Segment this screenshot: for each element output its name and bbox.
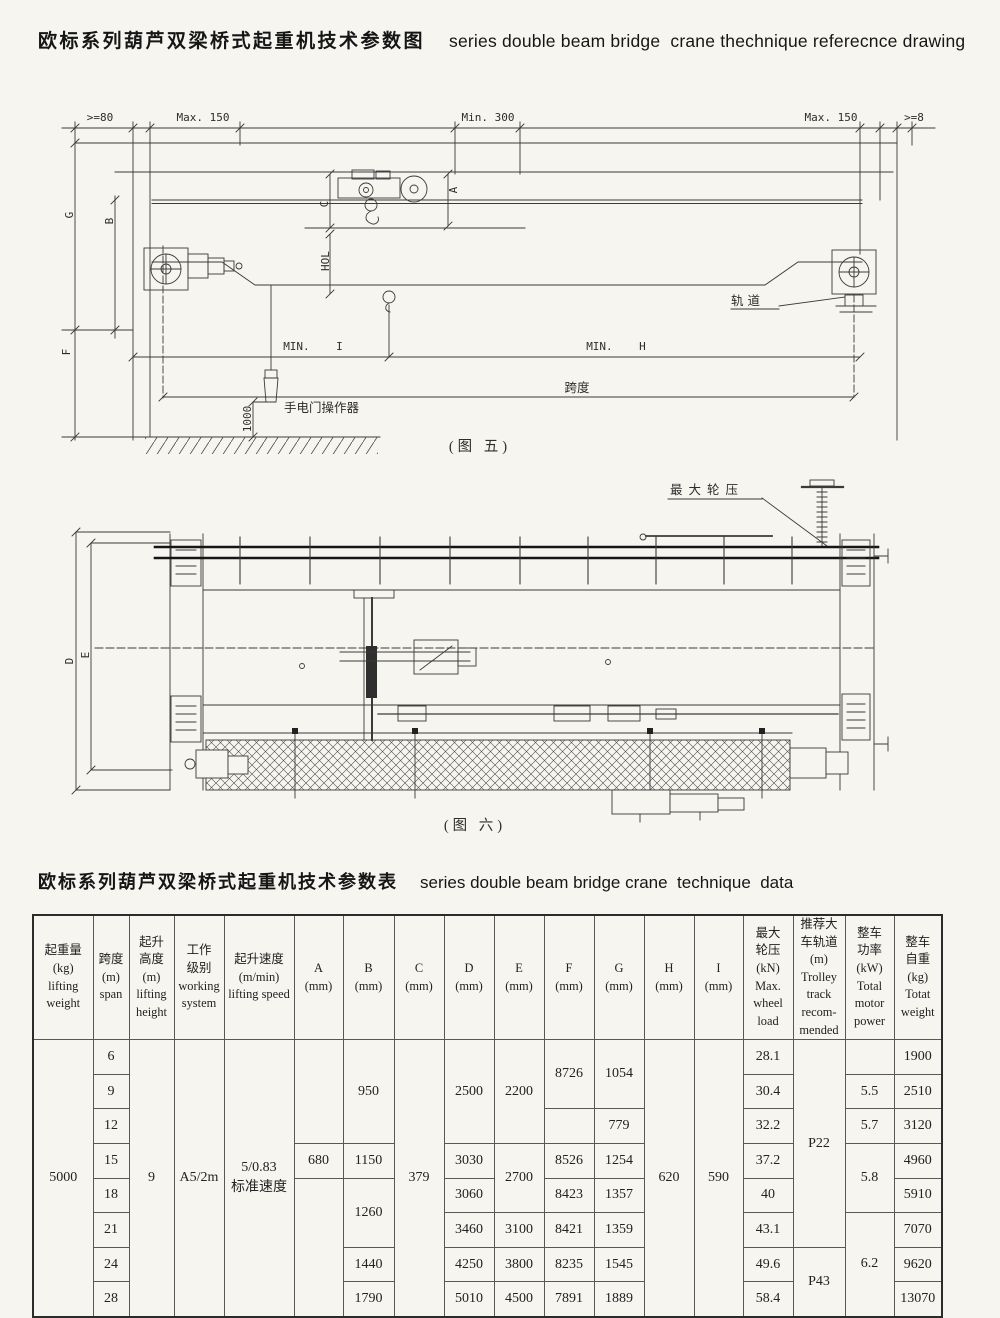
dim-min-line — [129, 353, 864, 361]
cell-max-wheel-load: 49.6 — [743, 1247, 793, 1282]
dim-min-h-label: MIN. H — [586, 340, 646, 353]
cell-lifting-weight: 5000 — [33, 1040, 93, 1317]
trolley-plan — [300, 590, 611, 740]
hoist-trolley — [338, 170, 427, 224]
cell-b: 1150 — [343, 1144, 394, 1179]
screw-rod — [802, 480, 843, 546]
max-wheel-leader — [668, 498, 827, 546]
dim-span-line — [159, 393, 858, 401]
cell-i: 590 — [694, 1040, 743, 1317]
figure5-drawing — [62, 122, 935, 454]
pendant-label: 手电门操作器 — [284, 400, 360, 415]
cell-f: 8526 — [544, 1144, 594, 1179]
dim-min-i-label: MIN. I — [283, 340, 343, 353]
cell-d: 3060 — [444, 1178, 494, 1213]
figure6-drawing — [72, 480, 888, 822]
th-dim-e: E (mm) — [494, 915, 544, 1040]
th-motor-power: 整车 功率 (kW) Total motor power — [845, 915, 894, 1040]
th-dim-d: D (mm) — [444, 915, 494, 1040]
cell-f: 8421 — [544, 1213, 594, 1248]
cell-span: 21 — [93, 1213, 129, 1248]
cell-max-wheel-load: 37.2 — [743, 1144, 793, 1179]
cell-f: 8423 — [544, 1178, 594, 1213]
th-dim-c: C (mm) — [394, 915, 444, 1040]
cell-f: 7891 — [544, 1282, 594, 1317]
cell-d: 2500 — [444, 1040, 494, 1144]
table-title-zh: 欧标系列葫芦双梁桥式起重机技术参数表 — [38, 872, 398, 892]
girder-bottom — [152, 262, 862, 285]
th-dim-i: I (mm) — [694, 915, 743, 1040]
cell-b: 1790 — [343, 1282, 394, 1317]
cell-max-wheel-load: 40 — [743, 1178, 793, 1213]
cell-d: 4250 — [444, 1247, 494, 1282]
dim-hol-label: HOL — [319, 251, 332, 271]
dim-d-label: D — [63, 658, 76, 665]
table-title-en: series double beam bridge crane techniqu… — [420, 873, 793, 892]
cell-total-weight: 9620 — [894, 1247, 942, 1282]
cell-f: 8235 — [544, 1247, 594, 1282]
cell-g: 1889 — [594, 1282, 644, 1317]
cell-span: 15 — [93, 1144, 129, 1179]
cell-e: 3800 — [494, 1247, 544, 1282]
travel-motor-right — [790, 748, 848, 778]
drive-unit-bottom — [612, 790, 744, 822]
cell-total-weight: 7070 — [894, 1213, 942, 1248]
dim-1000-label: 1000 — [241, 406, 254, 433]
th-dim-g: G (mm) — [594, 915, 644, 1040]
figure6-caption: (图 六) — [444, 817, 506, 834]
cell-g: 779 — [594, 1109, 644, 1144]
dim-d-line — [72, 528, 170, 794]
th-dim-f: F (mm) — [544, 915, 594, 1040]
cell-b: 1440 — [343, 1247, 394, 1282]
cell-motor-power: 5.5 — [845, 1074, 894, 1109]
cell-g: 1054 — [594, 1040, 644, 1109]
dim-max150-right-label: Max. 150 — [805, 111, 858, 124]
rail-label: 轨道 — [731, 294, 764, 308]
th-lifting-speed: 起升速度 (m/min) lifting speed — [224, 915, 294, 1040]
dim-a-label: A — [447, 186, 460, 193]
cell-g: 1254 — [594, 1144, 644, 1179]
cell-lifting-height: 9 — [129, 1040, 174, 1317]
cell-span: 9 — [93, 1074, 129, 1109]
max-wheel-load-label: 最大轮压 — [670, 483, 744, 497]
th-dim-h: H (mm) — [644, 915, 694, 1040]
figure5-caption: (图 五) — [449, 439, 511, 455]
pendant-control — [264, 285, 278, 402]
end-truck-right — [832, 250, 876, 312]
cell-e: 2700 — [494, 1144, 544, 1213]
dim-min300-label: Min. 300 — [462, 111, 515, 124]
th-dim-a: A (mm) — [294, 915, 343, 1040]
cell-total-weight: 3120 — [894, 1109, 942, 1144]
rail-posts — [240, 537, 792, 584]
cell-working-system: A5/2m — [174, 1040, 224, 1317]
cell-e: 3100 — [494, 1213, 544, 1248]
cell-d: 3460 — [444, 1213, 494, 1248]
center-lines — [163, 246, 854, 398]
cell-track: P43 — [793, 1247, 845, 1316]
span-label: 跨度 — [564, 380, 590, 395]
cell-max-wheel-load: 28.1 — [743, 1040, 793, 1075]
cell-span: 18 — [93, 1178, 129, 1213]
cell-track: P22 — [793, 1040, 845, 1248]
cell-b: 950 — [343, 1040, 394, 1144]
th-span: 跨度 (m) span — [93, 915, 129, 1040]
dim-ge8-label: >=8 — [904, 111, 924, 124]
hook-icon — [366, 211, 378, 224]
header-row: 起重量 (kg) lifting weight 跨度 (m) span 起升 高… — [33, 915, 942, 1040]
cell-a-empty — [294, 1040, 343, 1144]
cell-h: 620 — [644, 1040, 694, 1317]
cell-span: 6 — [93, 1040, 129, 1075]
cell-max-wheel-load: 32.2 — [743, 1109, 793, 1144]
cell-total-weight: 1900 — [894, 1040, 942, 1075]
dim-f-label: F — [60, 349, 73, 356]
handrail-curl — [640, 534, 646, 540]
cell-motor-power: 5.8 — [845, 1144, 894, 1213]
cell-total-weight: 5910 — [894, 1178, 942, 1213]
table-row: 5000 6 9 A5/2m 5/0.83 标准速度 950 379 2500 … — [33, 1040, 942, 1075]
dim-e-line — [87, 539, 172, 774]
hook-lower-position — [383, 291, 395, 357]
ground-hatch — [145, 437, 378, 454]
cell-g: 1359 — [594, 1213, 644, 1248]
cell-max-wheel-load: 30.4 — [743, 1074, 793, 1109]
cell-motor-power: 6.2 — [845, 1213, 894, 1317]
cell-e: 2200 — [494, 1040, 544, 1144]
th-dim-b: B (mm) — [343, 915, 394, 1040]
th-max-wheel-load: 最大 轮压 (kN) Max. wheel load — [743, 915, 793, 1040]
cell-max-wheel-load: 43.1 — [743, 1213, 793, 1248]
cell-total-weight: 13070 — [894, 1282, 942, 1317]
cell-a: 680 — [294, 1144, 343, 1179]
cell-b: 1260 — [343, 1178, 394, 1247]
dim-g-label: G — [63, 212, 76, 219]
cell-g: 1545 — [594, 1247, 644, 1282]
cell-a-empty — [294, 1178, 343, 1316]
cell-total-weight: 4960 — [894, 1144, 942, 1179]
th-working-system: 工作 级别 working system — [174, 915, 224, 1040]
cell-span: 24 — [93, 1247, 129, 1282]
table-title: 欧标系列葫芦双梁桥式起重机技术参数表series double beam bri… — [38, 868, 793, 894]
cell-total-weight: 2510 — [894, 1074, 942, 1109]
cell-motor-power-empty — [845, 1040, 894, 1075]
cell-span: 28 — [93, 1282, 129, 1317]
cell-e: 4500 — [494, 1282, 544, 1317]
dim-e-label: E — [79, 652, 92, 659]
cell-motor-power: 5.7 — [845, 1109, 894, 1144]
end-truck-left — [144, 248, 242, 290]
dim-max150-left-label: Max. 150 — [177, 111, 230, 124]
runway-lines — [75, 143, 897, 172]
th-total-weight: 整车 自重 (kg) Totat weight — [894, 915, 942, 1040]
extension-lines — [75, 122, 912, 440]
gb-dim-ends — [62, 139, 133, 441]
dim-b-label: B — [103, 217, 116, 224]
cell-c: 379 — [394, 1040, 444, 1317]
cell-f-empty — [544, 1109, 594, 1144]
dim-c-label: C — [318, 201, 331, 208]
cell-f: 8726 — [544, 1040, 594, 1109]
girder-top — [152, 200, 862, 228]
parameters-table: 起重量 (kg) lifting weight 跨度 (m) span 起升 高… — [32, 914, 943, 1318]
cell-max-wheel-load: 58.4 — [743, 1282, 793, 1317]
cell-lifting-speed: 5/0.83 标准速度 — [224, 1040, 294, 1317]
cell-d: 5010 — [444, 1282, 494, 1317]
th-lifting-height: 起升 高度 (m) lifting height — [129, 915, 174, 1040]
th-track-recommended: 推荐大 车轨道 (m) Trolley track recom- mended — [793, 915, 845, 1040]
cell-g: 1357 — [594, 1178, 644, 1213]
girder-lines — [203, 590, 840, 733]
th-lifting-weight: 起重量 (kg) lifting weight — [33, 915, 93, 1040]
cell-span: 12 — [93, 1109, 129, 1144]
cell-d: 3030 — [444, 1144, 494, 1179]
walkway-hatch — [206, 740, 790, 790]
dim-ge80-label: >=80 — [87, 111, 114, 124]
